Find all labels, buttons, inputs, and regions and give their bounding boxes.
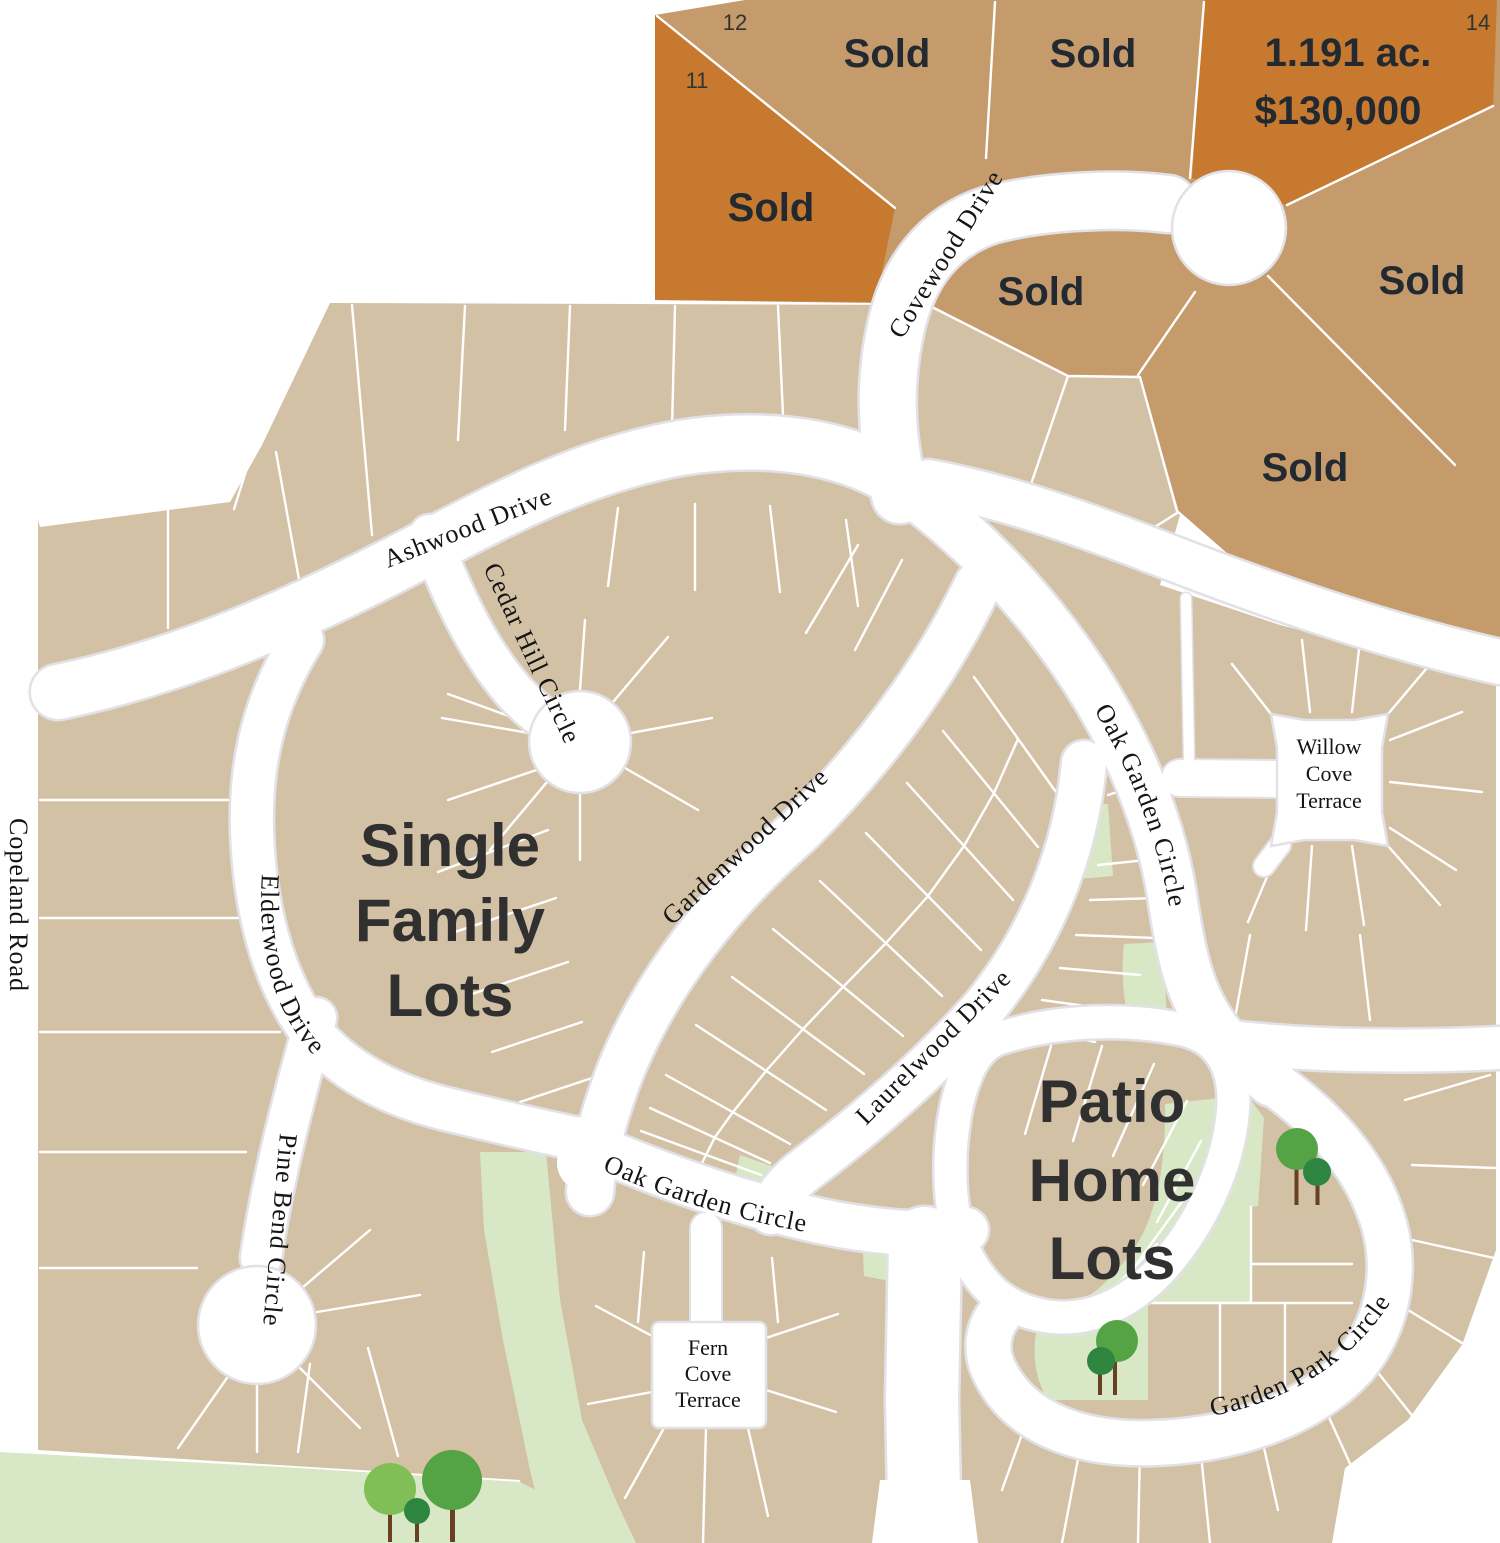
svg-text:Copeland Road: Copeland Road bbox=[4, 818, 33, 992]
svg-text:Cove: Cove bbox=[685, 1361, 731, 1386]
svg-text:Sold: Sold bbox=[1379, 259, 1466, 303]
svg-text:11: 11 bbox=[686, 68, 709, 93]
svg-text:$130,000: $130,000 bbox=[1255, 89, 1422, 133]
svg-text:Terrace: Terrace bbox=[1296, 788, 1362, 813]
svg-text:Sold: Sold bbox=[998, 270, 1085, 314]
svg-text:Lots: Lots bbox=[387, 962, 514, 1029]
svg-text:Home: Home bbox=[1029, 1147, 1196, 1214]
svg-text:Sold: Sold bbox=[728, 186, 815, 230]
svg-text:Family: Family bbox=[355, 887, 546, 954]
svg-text:Willow: Willow bbox=[1296, 734, 1361, 759]
svg-text:Sold: Sold bbox=[1262, 446, 1349, 490]
svg-text:Cove: Cove bbox=[1306, 761, 1352, 786]
svg-text:12: 12 bbox=[723, 10, 747, 35]
svg-text:Sold: Sold bbox=[1050, 32, 1137, 76]
svg-text:1.191 ac.: 1.191 ac. bbox=[1265, 31, 1432, 75]
svg-text:Terrace: Terrace bbox=[675, 1387, 741, 1412]
svg-text:Fern: Fern bbox=[688, 1335, 728, 1360]
svg-text:Lots: Lots bbox=[1049, 1225, 1176, 1292]
svg-text:Single: Single bbox=[360, 812, 540, 879]
svg-text:Patio: Patio bbox=[1039, 1068, 1186, 1135]
svg-text:14: 14 bbox=[1466, 10, 1490, 35]
svg-text:Sold: Sold bbox=[844, 32, 931, 76]
